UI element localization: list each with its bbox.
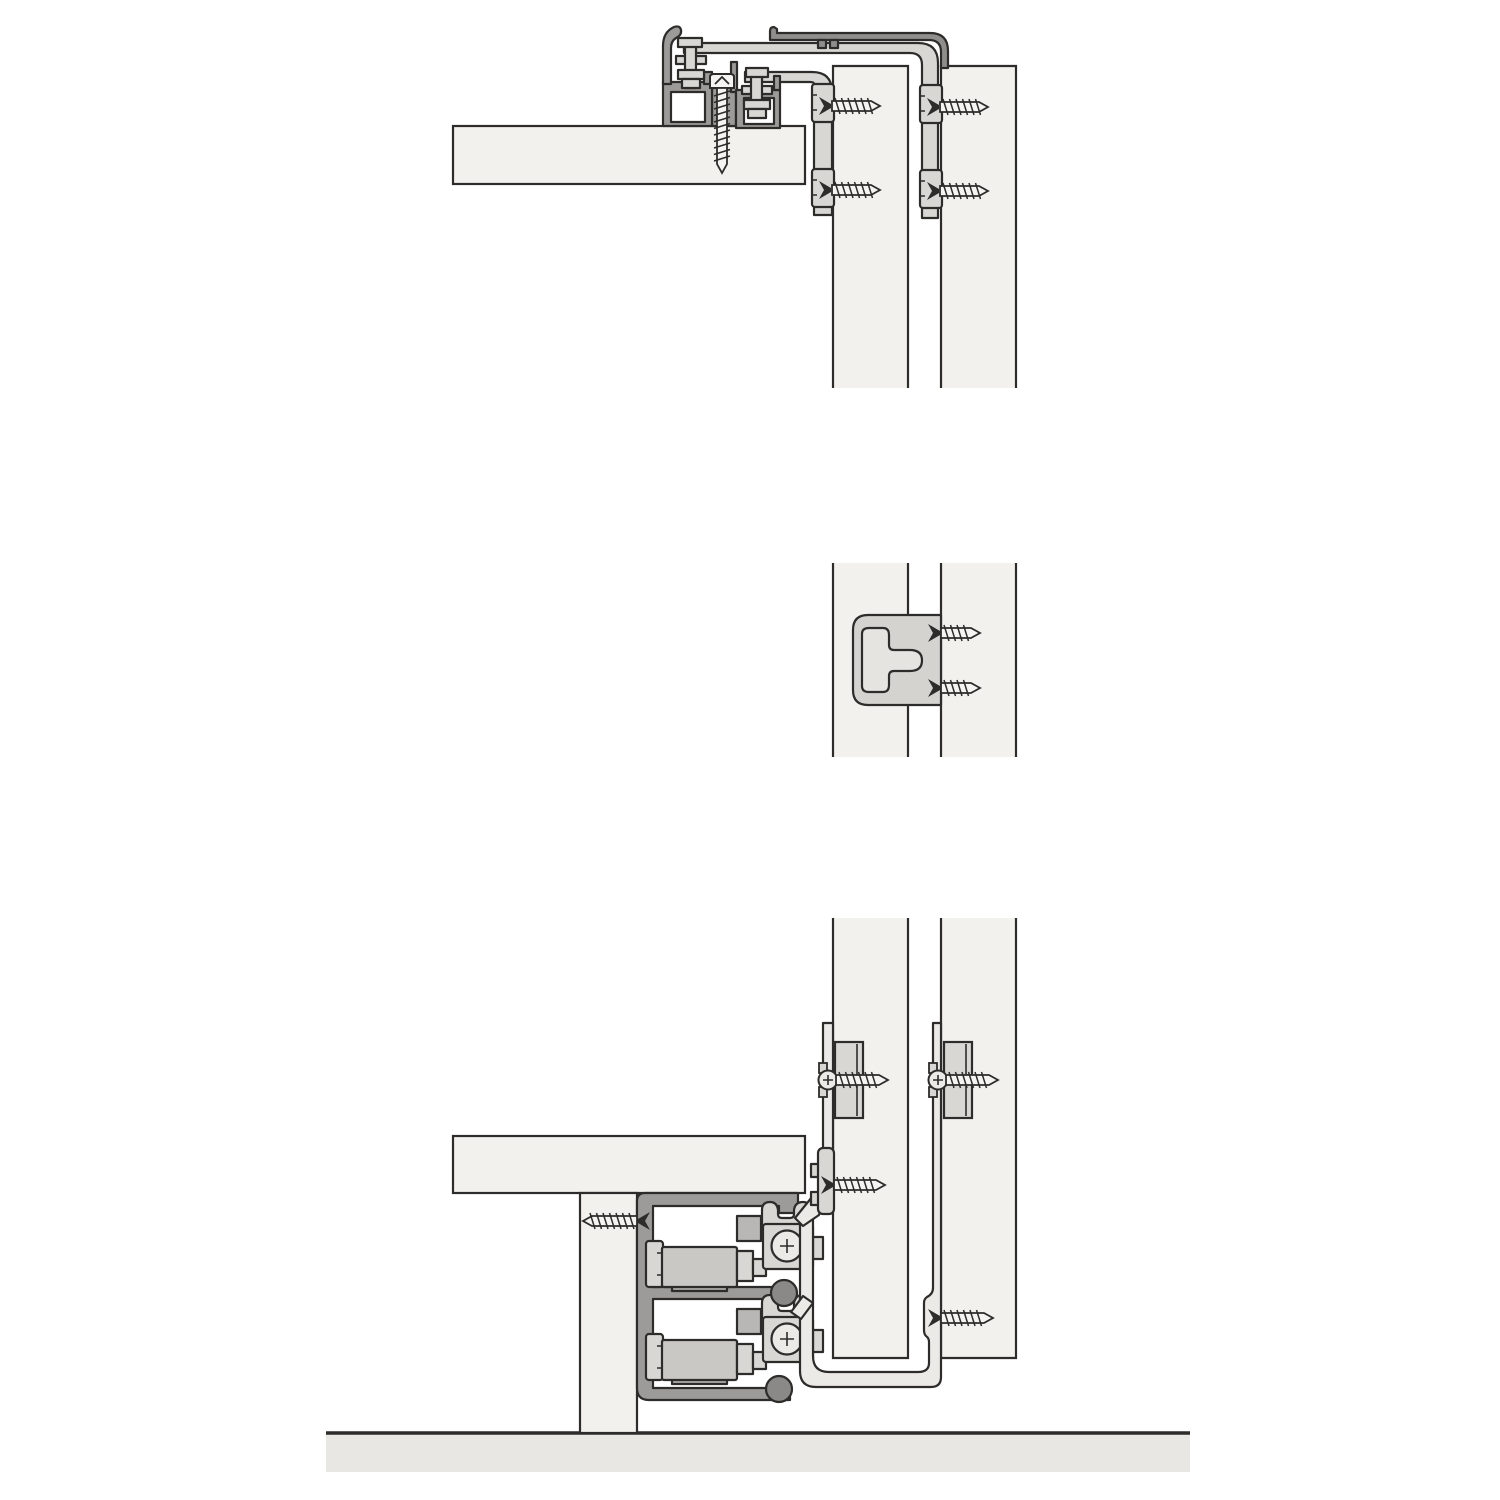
- floor-slab: [326, 1433, 1190, 1472]
- bottom-left-door-panel: [833, 918, 908, 1358]
- bottom-right-door-panel: [941, 918, 1016, 1358]
- middle-web-guide-knob: [771, 1280, 797, 1306]
- upper-carriage-side-tab: [813, 1237, 823, 1259]
- diagram-canvas: [0, 0, 1500, 1500]
- top-track-profile-right-fin-right: [774, 76, 780, 90]
- top-glider-right-foot-lower: [748, 109, 766, 118]
- bottom-shelf-board: [453, 1136, 805, 1193]
- top-left-door-panel: [833, 66, 908, 388]
- top-glider-left-foot-lower: [682, 79, 700, 88]
- support-leg: [580, 1193, 637, 1433]
- top-shelf-board: [453, 126, 805, 184]
- upper-carriage-connector-1: [737, 1251, 753, 1281]
- upper-carriage-roller-block: [662, 1247, 737, 1287]
- top-glider-right-foot-upper: [744, 100, 770, 109]
- door-panels-layer: [833, 66, 1016, 1358]
- bottom-flange-guide-knob: [766, 1376, 792, 1402]
- top-cover-clip-2: [830, 40, 838, 48]
- lower-carriage-connector-1: [737, 1344, 753, 1374]
- floor-layer: [326, 1433, 1190, 1472]
- upper-carriage-top-block: [737, 1216, 761, 1241]
- middle-clip-assembly: [853, 615, 941, 705]
- drawing-page: [0, 0, 1500, 1500]
- lower-carriage-side-tab: [813, 1330, 823, 1352]
- lower-carriage-top-block: [737, 1309, 761, 1334]
- top-right-door-panel: [941, 66, 1016, 388]
- bottom-track-clip-lower: [646, 1334, 663, 1380]
- middle-right-door-panel: [941, 563, 1016, 757]
- top-glider-left-foot-upper: [678, 70, 704, 79]
- bottom-track-clip-upper: [646, 1241, 663, 1287]
- top-cover-clip-1: [818, 40, 826, 48]
- lower-carriage-roller-block: [662, 1340, 737, 1380]
